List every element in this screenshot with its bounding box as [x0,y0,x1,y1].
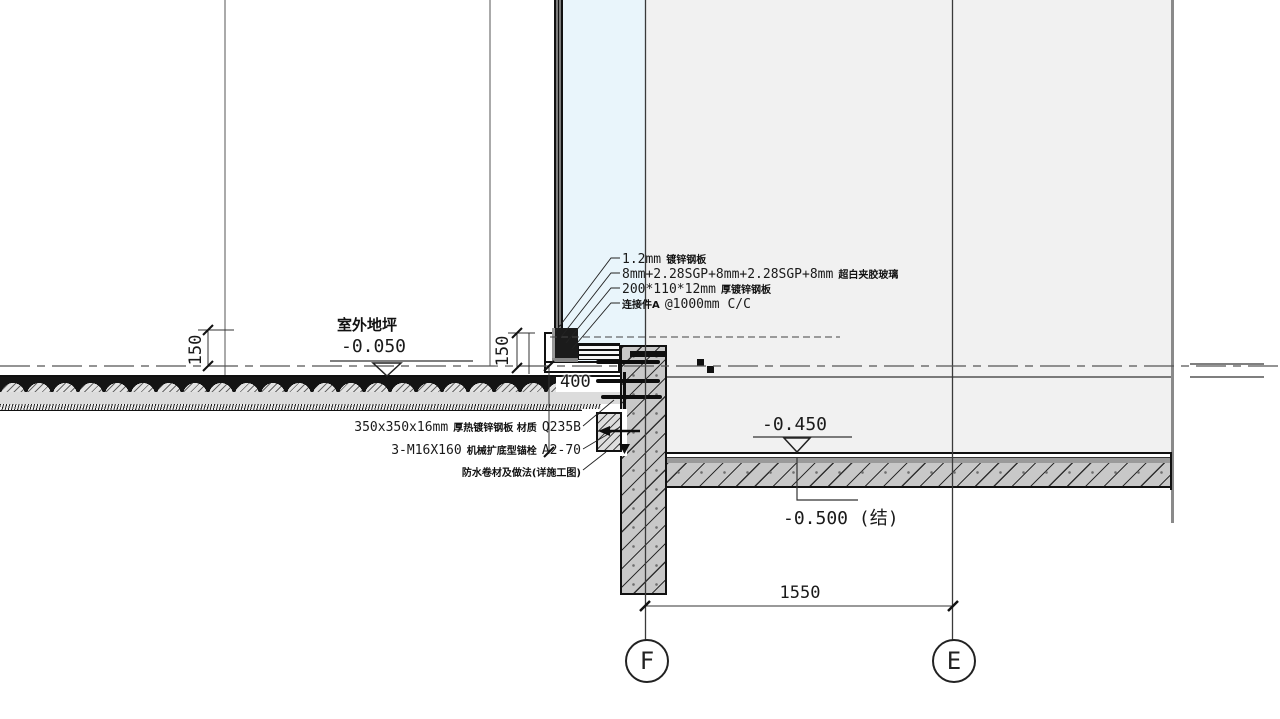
outdoor-level-value: -0.050 [341,336,406,357]
annotation-text: Q235B [542,420,581,435]
annotation-base-plate: 350x350x16mm 厚热镀锌钢板 材质 Q235B [354,418,581,436]
annotation-text-cn: 厚热镀锌钢板 材质 [453,423,536,434]
dim-1550: 1550 [755,583,845,603]
architectural-section-drawing: F E 1.2mm 镀锌钢板 8mm+2.28SGP+8mm+2.28SGP+8… [0,0,1280,719]
dim-150-left: 150 [186,329,206,371]
annotation-text: 3-M16X160 [391,443,461,458]
grid-bubble-f: F [625,639,669,683]
outdoor-grade-label: 室外地坪 [337,314,397,335]
annotation-text-cn: 机械扩底型锚栓 [467,446,537,457]
annotation-waterproofing: 防水卷材及做法(详施工图) [462,463,581,481]
slab-level-value: -0.450 [762,414,827,435]
annotation-text: @1000mm C/C [665,297,751,312]
annotation-text-cn: 连接件A [622,300,660,311]
annotation-text: A2-70 [542,443,581,458]
grid-label-f: F [640,647,654,675]
dim-400: 400 [560,372,591,392]
annotation-text: 350x350x16mm [354,420,448,435]
grid-label-e: E [947,647,961,675]
structural-level-value: -0.500 (结) [783,504,899,530]
annotation-anchor-bolt: 3-M16X160 机械扩底型锚栓 A2-70 [391,441,581,459]
grid-bubble-e: E [932,639,976,683]
dim-150-right: 150 [493,330,513,372]
annotation-text-cn: 防水卷材及做法(详施工图) [462,468,581,479]
annotation-connector: 连接件A @1000mm C/C [622,295,751,313]
annotation-text-cn: 超白夹胶玻璃 [838,270,898,281]
